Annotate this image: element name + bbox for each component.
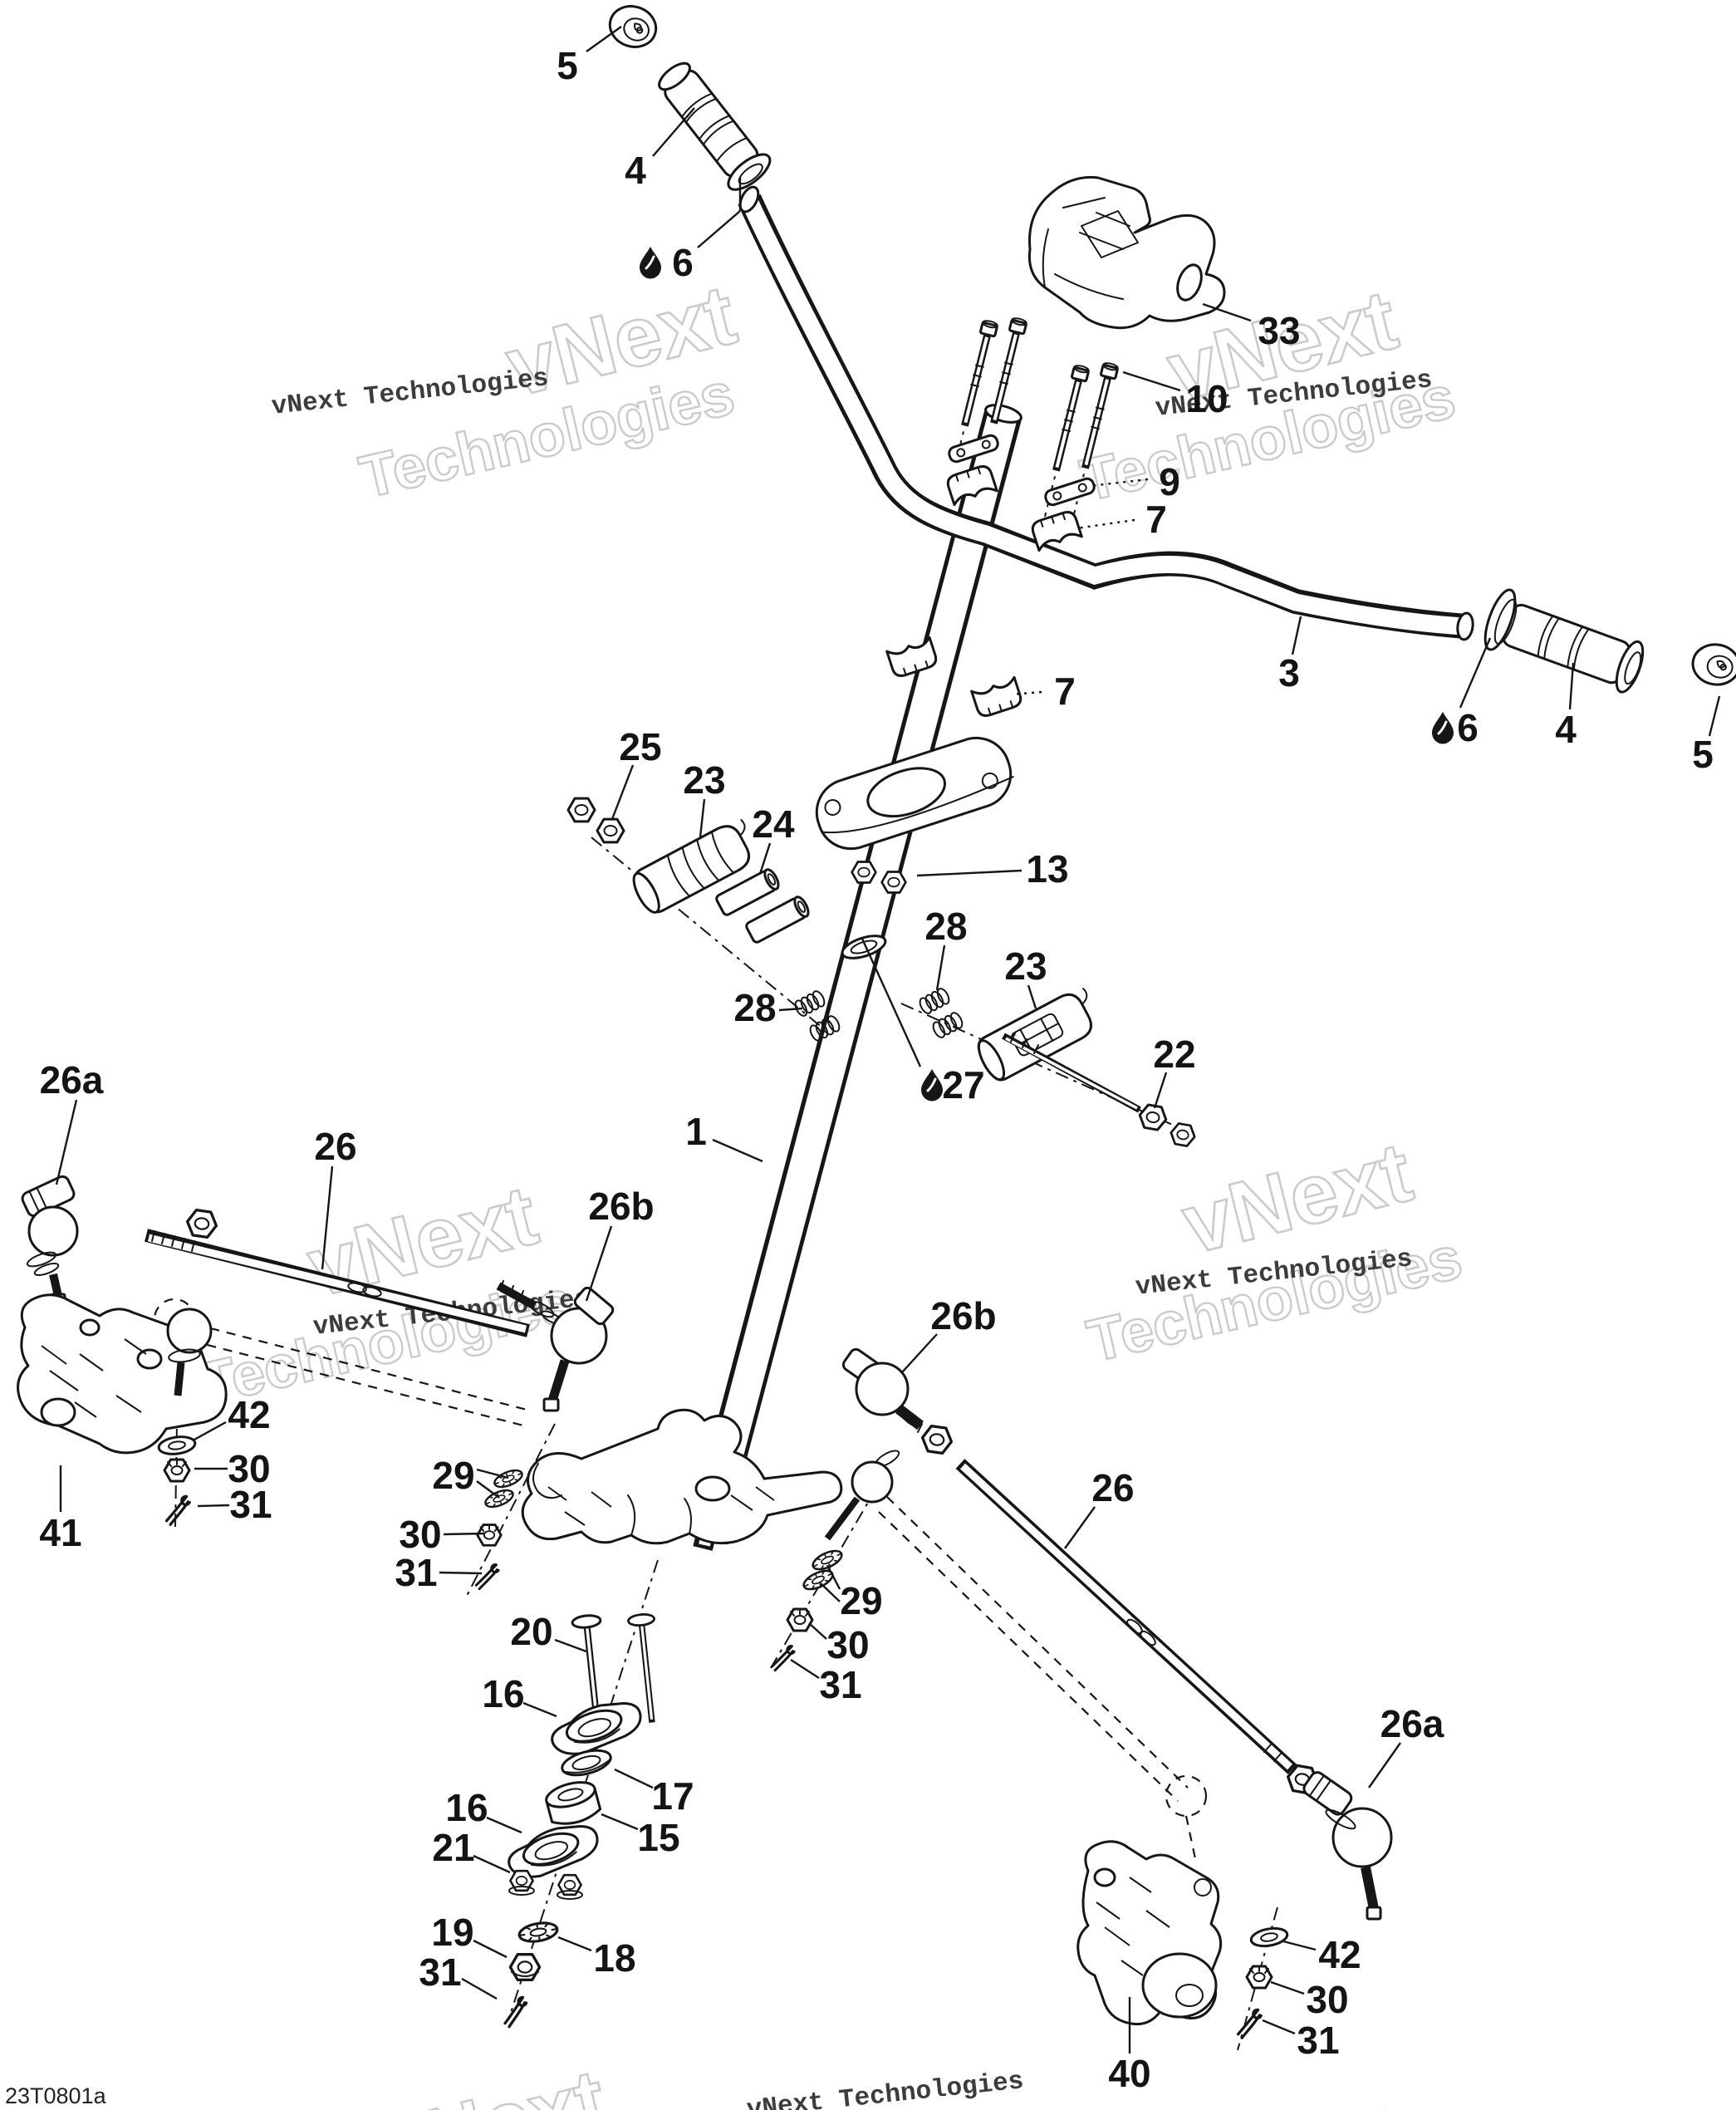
leader-line [198, 1505, 229, 1506]
castle-nut [787, 1609, 812, 1631]
callout-bushing-15: 15 [601, 1814, 680, 1859]
watermark-brand-outline: vNext [1165, 2088, 1412, 2110]
callout-label-cap-5-right: 5 [1692, 733, 1714, 776]
callout-tierod-end-26b-left: 26b [586, 1185, 655, 1301]
callout-bolt-21: 21 [432, 1826, 510, 1872]
callout-knuckle-41: 41 [39, 1465, 81, 1554]
callout-grip-4-left: 4 [625, 108, 694, 192]
leader-line [902, 1334, 937, 1372]
spring [918, 987, 951, 1015]
steering-knuckle-right [1078, 1842, 1221, 2024]
leader-line [612, 765, 633, 819]
callout-label-washer-29-mid: 29 [432, 1454, 474, 1497]
callout-label-clamp-23-left: 23 [683, 758, 725, 802]
leader-line [698, 211, 740, 248]
column-half-clamp-right [973, 985, 1105, 1084]
callout-grease-27: 27 [862, 939, 985, 1107]
tie-rod-end-outer-right [1302, 1770, 1391, 1919]
leader-line [779, 1008, 802, 1010]
callout-nut-30-mid: 30 [399, 1513, 485, 1556]
callout-spring-28-right: 28 [924, 905, 967, 990]
callout-bushing-16-upper: 16 [482, 1672, 557, 1716]
callout-bolt-20: 20 [510, 1610, 586, 1653]
flanged-bolt [509, 1871, 534, 1895]
leader-line [462, 1979, 497, 1999]
callout-nut-25: 25 [612, 725, 662, 819]
flat-washer [1250, 1926, 1289, 1948]
callout-label-bushing-16-upper: 16 [482, 1672, 524, 1715]
spring [931, 1011, 964, 1039]
grip-right [1479, 586, 1650, 700]
cotter-pin [769, 1646, 797, 1671]
lock-washer [517, 1921, 558, 1945]
flanged-nut [568, 798, 595, 822]
castle-nut [164, 1460, 189, 1481]
leader-line [791, 1660, 819, 1678]
cotter-pin [162, 1496, 194, 1525]
callout-label-tierod-end-26b-right: 26b [930, 1294, 996, 1337]
callout-grease-6-left: 6 [640, 178, 740, 284]
assembly-axes [175, 328, 1277, 2050]
leader-line [1283, 1941, 1316, 1950]
leader-line [713, 1140, 763, 1161]
callout-seal-17: 17 [615, 1769, 694, 1818]
exploded-parts-diagram: vNext Technologies vNext Technologies vN… [0, 0, 1736, 2110]
leader-line [615, 1769, 653, 1788]
callout-handlebar-3: 3 [1278, 616, 1301, 694]
callout-label-tierod-end-26a-right: 26a [1380, 1702, 1444, 1745]
watermark-combined: vNext Technologies [745, 2067, 1025, 2110]
watermark-name-outline: Technologies [1472, 2098, 1736, 2110]
callout-label-bolt-20: 20 [510, 1610, 552, 1653]
leader-line [487, 1818, 522, 1833]
leader-line [1155, 1072, 1166, 1108]
leader-line [601, 1814, 638, 1829]
flat-washer [158, 1435, 196, 1456]
flanged-nut [510, 1955, 539, 1980]
callout-layer: 54633109773645252324132823282227126a2626… [39, 27, 1719, 2095]
leader-line [555, 1640, 586, 1651]
callout-tierod-end-26a-right: 26a [1369, 1702, 1444, 1788]
leader-line [444, 1533, 485, 1534]
leader-line [473, 1941, 507, 1957]
callout-label-seal-17: 17 [651, 1774, 694, 1818]
hex-nut [852, 861, 876, 882]
leader-line [1271, 1982, 1304, 1994]
callout-washer-29-mid: 29 [432, 1454, 508, 1498]
leader-line [1369, 1743, 1400, 1788]
end-cap-right [1690, 641, 1736, 687]
callout-cap-5-right: 5 [1692, 696, 1719, 776]
steering-fork [522, 1410, 841, 1543]
watermark-brand-outline: vNext [368, 2051, 615, 2110]
hex-nut [882, 871, 906, 892]
callout-washer-18: 18 [558, 1936, 636, 1980]
callout-label-pin-31-mid: 31 [395, 1551, 437, 1594]
tie-rod-end-inner-right [841, 1347, 954, 1455]
diagram-canvas: vNext Technologies vNext Technologies vN… [0, 0, 1736, 2110]
clamp-spacer [745, 895, 811, 944]
leader-line [821, 1583, 840, 1602]
callout-spring-28-left: 28 [733, 986, 802, 1029]
callout-pin-31-left: 31 [198, 1483, 272, 1526]
callout-label-knuckle-41: 41 [39, 1511, 81, 1554]
callout-grease-6-right: 6 [1432, 638, 1490, 749]
callout-label-nut-30-mid: 30 [399, 1513, 441, 1556]
leader-line [809, 1623, 826, 1639]
callout-washer-42-right: 42 [1283, 1933, 1361, 1976]
castle-nut [1247, 1966, 1272, 1988]
callout-pin-31-bottom: 31 [419, 1951, 497, 1999]
leader-line [586, 1226, 611, 1301]
leader-line [1460, 638, 1490, 708]
tie-rod-right-installed-dashed [879, 1497, 1206, 1862]
callout-label-knuckle-40: 40 [1108, 2052, 1150, 2095]
callout-cap-5-left: 5 [557, 27, 621, 87]
callout-label-spring-28-left: 28 [733, 986, 776, 1029]
leader-line [1065, 1507, 1095, 1548]
watermark-bottom-left: vNext vNext Technologies [368, 2051, 1025, 2110]
callout-label-clamp-7-upper: 7 [1145, 498, 1167, 541]
watermark-top-left: vNext Technologies vNext Technologies [270, 267, 744, 511]
lock-washer [810, 1547, 844, 1573]
callout-bolt-22: 22 [1153, 1033, 1195, 1108]
handlebar-clamp-half [972, 677, 1023, 718]
handlebar-clamp-cover [1029, 177, 1224, 327]
callout-label-pin-31-bottom: 31 [419, 1951, 461, 1994]
callout-label-nut-25: 25 [619, 725, 661, 768]
callout-grip-4-right: 4 [1555, 663, 1577, 751]
callout-label-clamp-23-right: 23 [1004, 945, 1047, 988]
callout-clamp-23-left: 23 [683, 758, 725, 837]
callout-clamp-23-right: 23 [1004, 945, 1047, 1008]
callout-tierod-26-right: 26 [1065, 1466, 1135, 1548]
callout-tierod-end-26b-right: 26b [902, 1294, 997, 1372]
leader-line [1028, 985, 1036, 1008]
callout-label-grease-27: 27 [942, 1063, 984, 1107]
callout-pin-31-mid: 31 [395, 1551, 482, 1594]
callout-label-bushing-15: 15 [637, 1816, 679, 1859]
leader-line [653, 108, 694, 156]
leader-line [439, 1573, 482, 1573]
callout-label-washer-42-right: 42 [1318, 1933, 1361, 1976]
leader-line [1263, 2020, 1295, 2034]
callout-label-grease-6-left: 6 [672, 241, 694, 284]
jam-nut [185, 1209, 218, 1238]
leader-line [937, 945, 944, 990]
callout-label-nut-30-right2: 30 [1306, 1978, 1348, 2021]
flanged-bolt [557, 1875, 582, 1899]
callout-label-spring-28-right: 28 [924, 905, 967, 948]
callout-label-handlebar-3: 3 [1278, 651, 1300, 694]
callout-label-nut-19: 19 [431, 1911, 473, 1954]
callout-nut-13: 13 [917, 847, 1069, 891]
callout-label-grip-4-left: 4 [625, 149, 646, 192]
callout-pin-31-right: 31 [791, 1660, 862, 1706]
callout-label-bushing-16-lower: 16 [445, 1786, 488, 1829]
callout-label-nut-30-right: 30 [826, 1623, 869, 1666]
watermark-bottom-right: vNext Technologies [1165, 2088, 1736, 2110]
leader-line [56, 1100, 76, 1185]
callout-label-nut-13: 13 [1026, 847, 1068, 891]
tie-rod-end-outer-left [20, 1175, 77, 1305]
callout-label-washer-42-left: 42 [228, 1393, 270, 1436]
callout-tierod-end-26a-left: 26a [40, 1058, 104, 1185]
spring [793, 989, 826, 1018]
callout-label-cover-33: 33 [1258, 309, 1300, 352]
callout-label-washer-18: 18 [593, 1936, 635, 1980]
callout-label-pin-31-right2: 31 [1297, 2019, 1339, 2062]
callout-label-pin-31-right: 31 [819, 1663, 861, 1706]
leader-line [862, 939, 920, 1067]
callout-label-tierod-end-26b-left: 26b [588, 1185, 654, 1228]
callout-label-washer-29-right: 29 [840, 1579, 882, 1622]
watermark-mid-right: vNext Technologies vNext Technologies [1081, 1124, 1468, 1375]
callout-label-cap-5-left: 5 [557, 44, 578, 87]
callout-nut-30-right: 30 [809, 1623, 870, 1666]
grip-left [650, 55, 775, 196]
castle-nut [478, 1525, 502, 1546]
callout-label-column-1: 1 [685, 1110, 707, 1153]
callout-label-bolt-21: 21 [432, 1826, 474, 1869]
lock-washer [493, 1467, 525, 1490]
bushing [544, 1778, 602, 1828]
leader-line [523, 1703, 557, 1716]
callout-column-1: 1 [685, 1110, 763, 1161]
callout-label-spacer-24: 24 [752, 802, 795, 846]
callout-label-tierod-26-right: 26 [1091, 1466, 1134, 1509]
callout-label-bolts-10: 10 [1185, 377, 1228, 420]
leader-line [700, 799, 704, 837]
handlebar-clamp-half [1030, 510, 1081, 551]
callout-label-pin-31-left: 31 [229, 1483, 272, 1526]
callout-label-tierod-end-26a-left: 26a [40, 1058, 104, 1102]
drawing-code: 23T0801a [5, 2083, 107, 2108]
callout-label-clamp-7-lower: 7 [1054, 670, 1076, 713]
leader-line [193, 1422, 226, 1440]
leader-line [558, 1937, 591, 1951]
leader-line [1709, 696, 1719, 736]
callout-label-grease-6-right: 6 [1457, 706, 1479, 749]
callout-nut-30-right2: 30 [1271, 1978, 1349, 2021]
leader-line [917, 871, 1022, 876]
callout-label-grip-4-right: 4 [1555, 708, 1577, 751]
end-cap-left [605, 1, 661, 53]
callout-spacer-24: 24 [752, 802, 795, 874]
callout-pin-31-right2: 31 [1263, 2019, 1340, 2062]
leader-line [1292, 616, 1301, 655]
flanged-nut [597, 819, 624, 842]
cotter-pin [1233, 2009, 1266, 2039]
callout-clamp-7-lower: 7 [1012, 670, 1076, 713]
callout-label-bolt-22: 22 [1153, 1033, 1195, 1076]
leader-line [1076, 520, 1135, 528]
leader-line [473, 1856, 510, 1872]
tie-rod-right [960, 1464, 1319, 1794]
callout-label-tierod-26-left: 26 [314, 1125, 356, 1168]
